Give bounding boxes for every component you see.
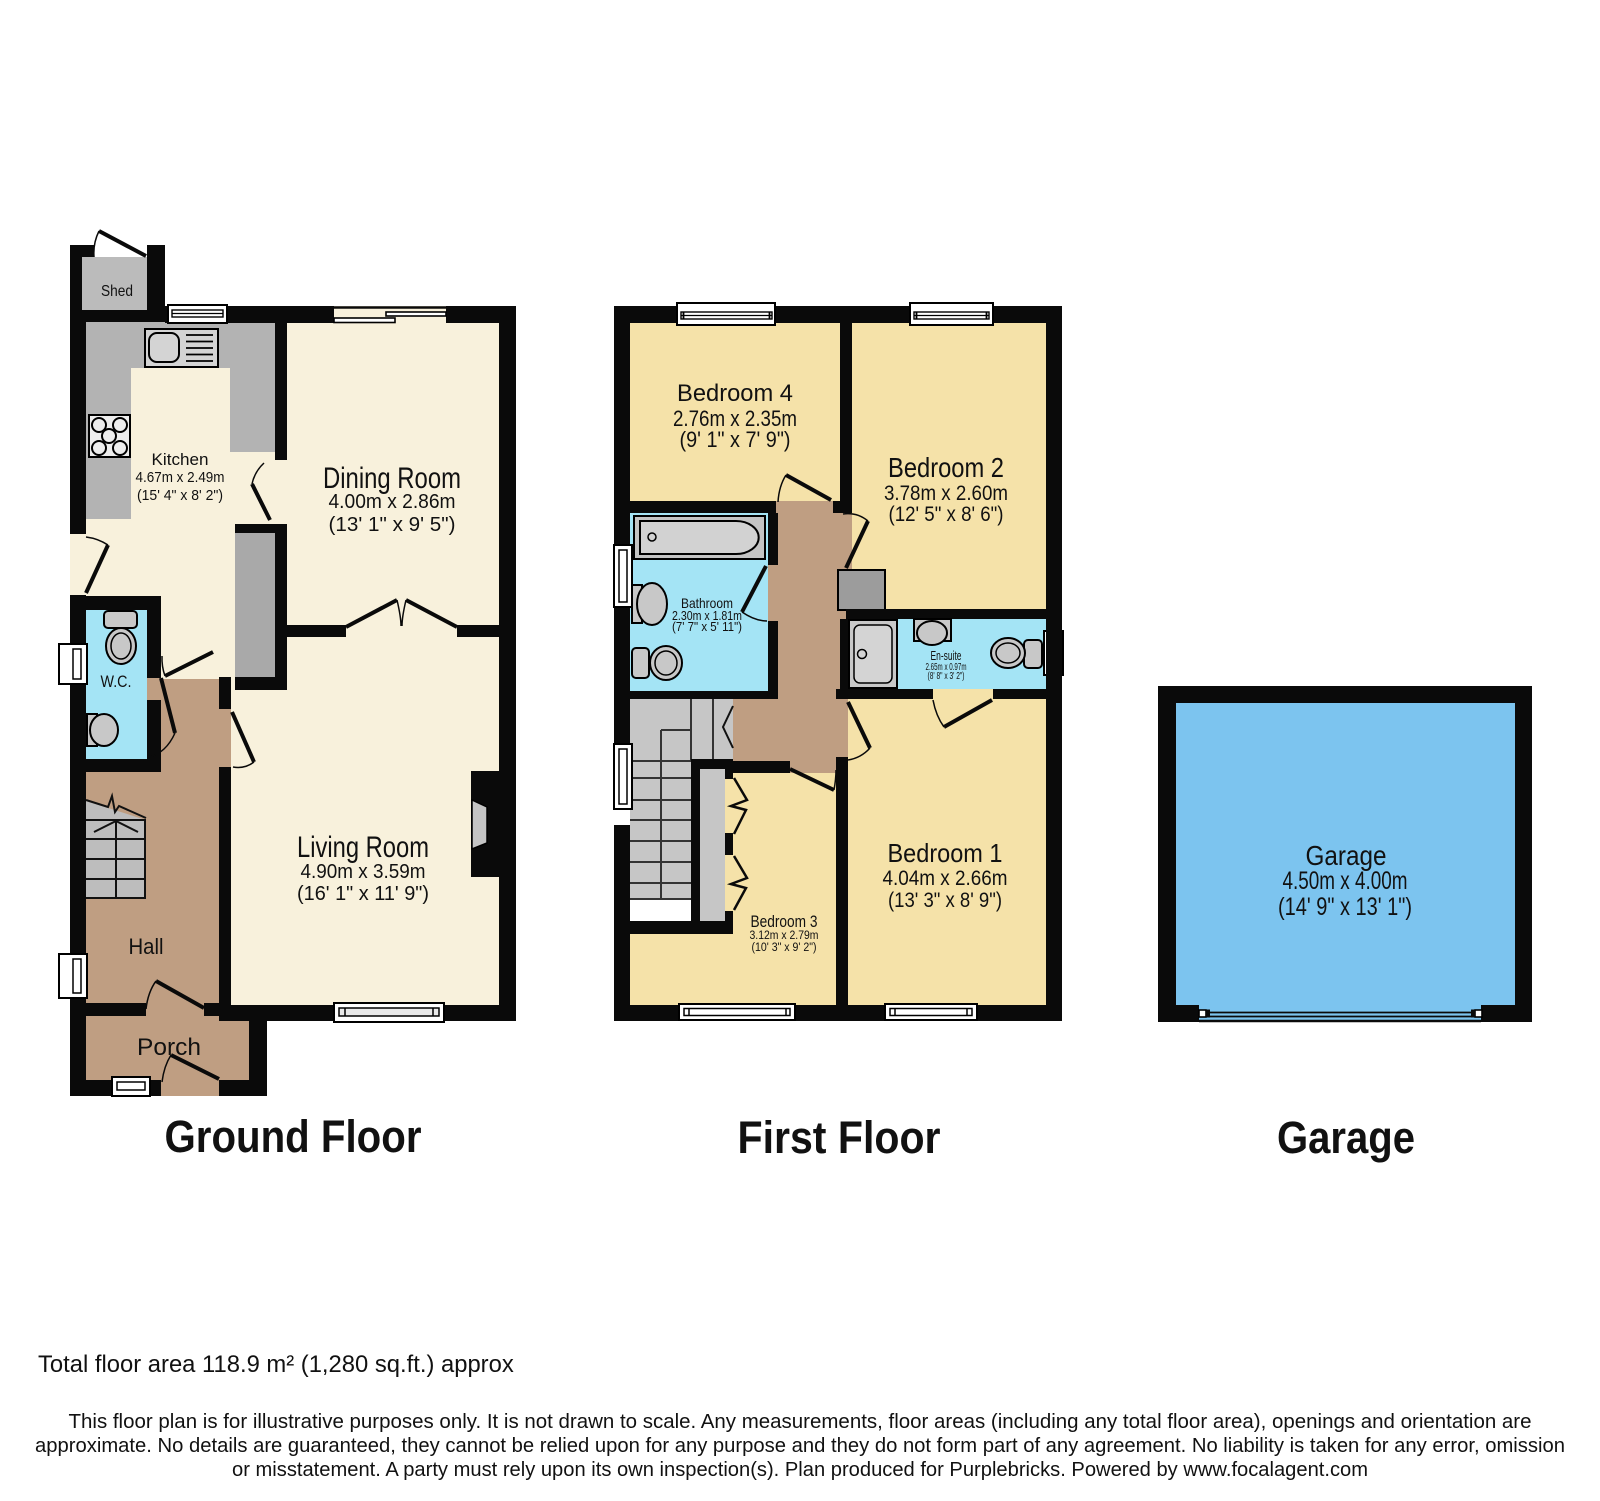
svg-text:(13' 1" x 9' 5"): (13' 1" x 9' 5") (329, 513, 456, 536)
svg-text:Garage: Garage (1277, 1112, 1415, 1163)
svg-text:3.12m x 2.79m: 3.12m x 2.79m (750, 930, 819, 942)
svg-text:4.00m x 2.86m: 4.00m x 2.86m (329, 490, 456, 513)
svg-text:Living Room: Living Room (297, 831, 429, 864)
svg-text:Bedroom 2: Bedroom 2 (888, 452, 1004, 483)
svg-text:Ground Floor: Ground Floor (165, 1111, 422, 1162)
svg-text:This floor plan is for illustr: This floor plan is for illustrative purp… (69, 1411, 1532, 1433)
svg-text:Hall: Hall (129, 934, 164, 959)
svg-text:(13' 3" x 8' 9"): (13' 3" x 8' 9") (888, 889, 1002, 912)
svg-text:(16' 1" x 11' 9"): (16' 1" x 11' 9") (297, 883, 429, 905)
svg-text:3.78m x 2.60m: 3.78m x 2.60m (884, 482, 1008, 505)
svg-text:(9' 1" x 7' 9"): (9' 1" x 7' 9") (680, 427, 791, 452)
svg-text:4.67m x 2.49m: 4.67m x 2.49m (136, 469, 225, 486)
svg-text:or misstatement. A party must: or misstatement. A party must rely upon … (232, 1459, 1368, 1481)
svg-text:Porch: Porch (137, 1034, 201, 1061)
svg-text:Kitchen: Kitchen (152, 450, 209, 469)
svg-text:Bedroom 3: Bedroom 3 (751, 912, 818, 931)
svg-text:Shed: Shed (101, 283, 133, 300)
svg-text:4.50m x 4.00m: 4.50m x 4.00m (1283, 867, 1408, 895)
svg-text:First Floor: First Floor (738, 1112, 941, 1163)
svg-text:(8' 8" x 3' 2"): (8' 8" x 3' 2") (928, 671, 965, 682)
svg-text:En-suite: En-suite (931, 648, 962, 663)
svg-text:4.90m x 3.59m: 4.90m x 3.59m (301, 861, 426, 883)
svg-text:Total floor area 118.9 m² (1,2: Total floor area 118.9 m² (1,280 sq.ft.)… (38, 1351, 514, 1378)
svg-text:W.C.: W.C. (101, 672, 132, 691)
svg-text:(12' 5" x 8' 6"): (12' 5" x 8' 6") (889, 503, 1004, 526)
svg-text:Bedroom 4: Bedroom 4 (677, 380, 793, 407)
svg-text:Bedroom 1: Bedroom 1 (888, 838, 1003, 868)
svg-text:(14' 9" x 13' 1"): (14' 9" x 13' 1") (1278, 893, 1412, 921)
svg-text:(10' 3" x 9' 2"): (10' 3" x 9' 2") (752, 942, 817, 954)
svg-text:(15' 4" x 8' 2"): (15' 4" x 8' 2") (137, 487, 223, 504)
svg-text:4.04m x 2.66m: 4.04m x 2.66m (883, 867, 1008, 890)
svg-text:approximate. No details are gu: approximate. No details are guaranteed, … (35, 1435, 1565, 1457)
svg-text:(7' 7" x 5' 11"): (7' 7" x 5' 11") (672, 620, 742, 634)
